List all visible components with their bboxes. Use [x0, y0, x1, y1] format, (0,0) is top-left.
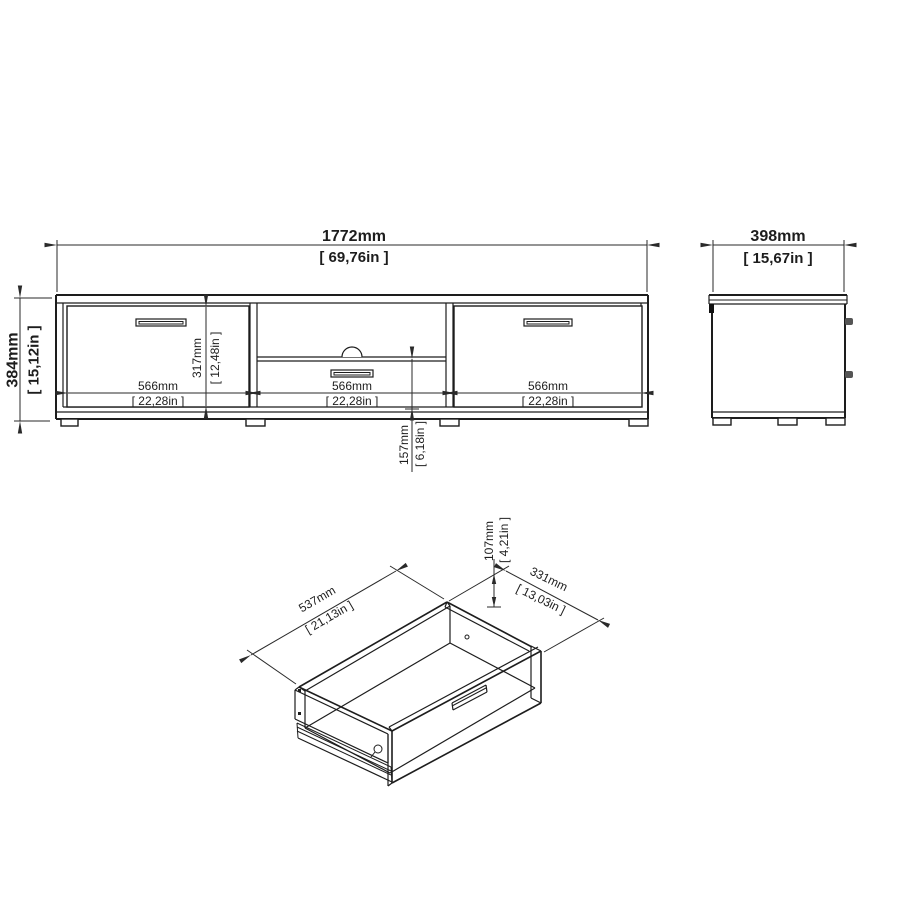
side-view-dimensions: 398mm [ 15,67in ]: [713, 228, 844, 292]
door-height-mm-label: 317mm: [190, 338, 204, 378]
side-feet: [713, 418, 845, 425]
shelf-pin-bottom: [845, 371, 853, 378]
section-right-in-label: [ 22,28in ]: [522, 394, 575, 408]
front-middle-drawer-handle: [331, 370, 373, 377]
technical-drawing: 1772mm [ 69,76in ] 384mm [ 15,12in ] 566…: [0, 0, 900, 900]
dim-arrow-down: [492, 597, 496, 607]
front-feet: [61, 419, 648, 426]
side-depth-mm-label: 398mm: [750, 228, 805, 245]
front-height-mm-label: 384mm: [5, 332, 22, 387]
section-right-mm-label: 566mm: [528, 379, 568, 393]
shelf-pin-top: [845, 318, 853, 325]
drawer-front-panel: [388, 646, 541, 786]
drawer-isometric-dimensions: 537mm [ 21,13in ] 331mm [ 13,03in ] 107m…: [247, 517, 604, 684]
drawer-height-in-label: [ 4,21in ]: [497, 517, 511, 563]
door-height-in-label: [ 12,48in ]: [208, 332, 222, 385]
side-panel-joint-mark: [709, 304, 714, 313]
section-left-mm-label: 566mm: [138, 379, 178, 393]
left-door-handle: [136, 319, 186, 326]
side-depth-in-label: [ 15,67in ]: [743, 250, 812, 267]
drawer-screw-hole: [465, 635, 469, 639]
side-shelf-pins: [845, 318, 853, 378]
side-view-outline: [709, 295, 853, 425]
drawer-height-mm-label: 107mm: [482, 521, 496, 561]
section-mid-in-label: [ 22,28in ]: [326, 394, 379, 408]
drawer-front-in-label: [ 6,18in ]: [413, 421, 427, 467]
drawer-front-mm-label: 157mm: [397, 425, 411, 465]
cable-notch-arc: [342, 347, 362, 357]
front-width-in-label: [ 69,76in ]: [319, 249, 388, 266]
right-door-handle: [524, 319, 572, 326]
front-middle-shelf: [257, 347, 446, 361]
rail-wheel: [374, 745, 382, 753]
rail-screw-top: [298, 689, 301, 692]
section-left-in-label: [ 22,28in ]: [132, 394, 185, 408]
rail-screw-bottom: [298, 712, 301, 715]
technical-drawing-page: 1772mm [ 69,76in ] 384mm [ 15,12in ] 566…: [0, 0, 900, 900]
front-height-in-label: [ 15,12in ]: [25, 325, 42, 394]
section-mid-mm-label: 566mm: [332, 379, 372, 393]
front-width-mm-label: 1772mm: [322, 228, 386, 245]
drawer-isometric-outline: [295, 602, 541, 786]
